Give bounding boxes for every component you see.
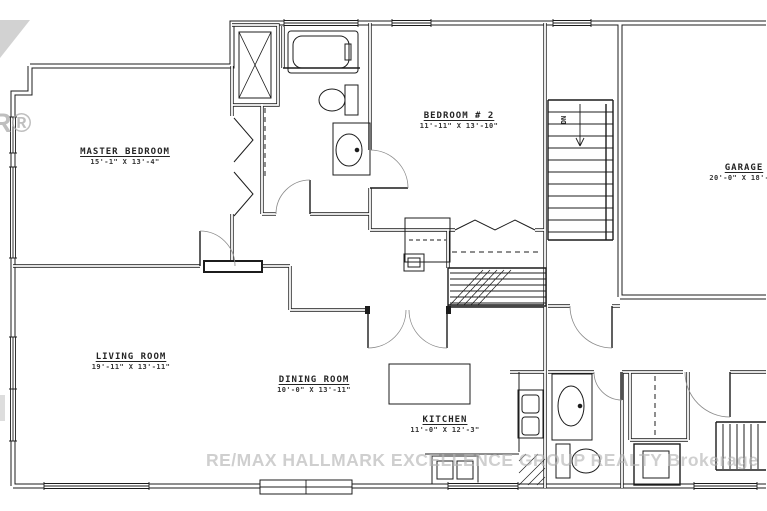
room-name: LIVING ROOM bbox=[92, 352, 170, 362]
room-label-kitchen: KITCHEN 11'-0" X 12'-3" bbox=[410, 415, 479, 434]
toilet-upper bbox=[319, 85, 358, 115]
room-dims: 20'-0" X 18'-2" bbox=[709, 174, 767, 182]
bathtub bbox=[283, 31, 360, 73]
room-label-living-room: LIVING ROOM 19'-11" X 13'-11" bbox=[92, 352, 170, 371]
room-name: BEDROOM # 2 bbox=[420, 111, 498, 121]
windows bbox=[9, 19, 757, 494]
patio-door bbox=[260, 480, 352, 494]
room-label-dining-room: DINING ROOM 10'-0" X 13'-11" bbox=[277, 375, 351, 394]
half-wall-header bbox=[204, 261, 262, 272]
room-name: MASTER BEDROOM bbox=[80, 147, 170, 157]
room-label-master-bedroom: MASTER BEDROOM 15'-1" X 13'-4" bbox=[80, 147, 170, 166]
room-dims: 11'-0" X 12'-3" bbox=[410, 426, 479, 434]
room-label-bedroom-2: BEDROOM # 2 11'-11" X 13'-10" bbox=[420, 111, 498, 130]
bathroom-vanity-lower bbox=[552, 374, 592, 440]
hall-closet bbox=[404, 218, 450, 271]
stairs-dn-label: DN bbox=[560, 116, 568, 124]
floor-plan-drawing bbox=[0, 0, 767, 511]
watermark-logo-fragment: R® bbox=[0, 108, 31, 139]
watermark-brokerage: RE/MAX HALLMARK EXCELLENCE GROUP REALTY … bbox=[206, 450, 758, 471]
exterior-walls bbox=[13, 23, 766, 486]
floor-plan-image: MASTER BEDROOM 15'-1" X 13'-4" BEDROOM #… bbox=[0, 0, 767, 511]
room-dims: 19'-11" X 13'-11" bbox=[92, 363, 170, 371]
room-label-garage: GARAGE 20'-0" X 18'-2" bbox=[709, 163, 767, 182]
closet-bifold-doors bbox=[455, 220, 535, 230]
kitchen-sink bbox=[518, 390, 543, 438]
staircase-main bbox=[548, 100, 613, 240]
sink-vanity-upper bbox=[333, 123, 370, 175]
room-dims: 10'-0" X 13'-11" bbox=[277, 386, 351, 394]
staircase-basement bbox=[448, 252, 546, 306]
room-dims: 15'-1" X 13'-4" bbox=[80, 158, 170, 166]
room-name: GARAGE bbox=[709, 163, 767, 173]
room-dims: 11'-11" X 13'-10" bbox=[420, 122, 498, 130]
interior-walls bbox=[13, 23, 766, 488]
shower-stall bbox=[239, 32, 271, 98]
dining-table bbox=[389, 364, 470, 404]
room-name: KITCHEN bbox=[410, 415, 479, 425]
room-name: DINING ROOM bbox=[277, 375, 351, 385]
